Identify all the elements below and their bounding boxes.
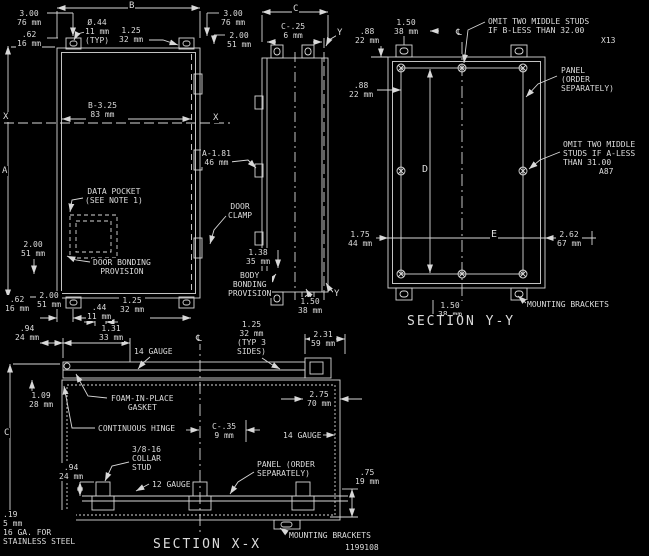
dim-.94-24-top-line: .94 [15,324,39,333]
dim-1.31-33: 1.3133 mm [98,324,124,342]
centerline-symbol-yy: ℄ [455,28,463,38]
title-section-yy-line: SECTION Y-Y [407,315,515,329]
marker-y-bottom: Y [333,289,340,299]
dim-3.00-76-left: 3.0076 mm [16,9,42,27]
dim-2.00-51-bottom-line: 2.00 [37,291,61,300]
dim-1.75-44: 1.7544 mm [347,230,373,248]
note-door-bonding-line: PROVISION [93,267,151,276]
dim-.44-11-bottom-line: 11 mm [87,312,111,321]
dim-.62-16-left-line: 16 mm [17,39,41,48]
dim-3.00-76-right-line: 3.00 [221,9,245,18]
dim-a-1.81-46-line: 46 mm [202,158,231,167]
note-data-pocket-line: DATA POCKET [85,187,143,196]
dim-2.62-67-line: 67 mm [557,239,581,248]
dim-2.00-51-right-line: 2.00 [227,31,251,40]
note-collar-stud: 3/8-16COLLARSTUD [131,445,162,472]
title-section-xx-line: SECTION X-X [153,538,261,552]
marker-x-right: X [212,113,219,123]
centerline-symbol-yy-line: ℄ [456,28,462,38]
dim-2.00-51-bottom: 2.0051 mm [36,291,62,309]
part-number-line: 1199108 [345,543,379,552]
dim-2.75-70-line: 2.75 [307,390,331,399]
note-material-line: .19 [3,510,75,519]
dim-3.00-76-right-line: 76 mm [221,18,245,27]
dim-.88-22-side-line: .88 [349,81,373,90]
note-data-pocket-line: (SEE NOTE 1) [85,196,143,205]
dim-1.38-35-line: 1.38 [246,248,270,257]
note-omit-studs-a: OMIT TWO MIDDLESTUDS IF A-LESSTHAN 31.00 [562,140,636,167]
dim-3.00-76-left-line: 3.00 [17,9,41,18]
note-omit-studs-a-line: STUDS IF A-LESS [563,149,635,158]
dim-2.31-59: 2.3159 mm [310,330,336,348]
note-panel-yy-line: PANEL [561,66,614,75]
note-door-bonding-line: DOOR BONDING [93,258,151,267]
dim-c-.25-6-line: 6 mm [281,31,305,40]
dim-2.75-70: 2.7570 mm [306,390,332,408]
note-14-gauge-top-line: 14 GAUGE [134,347,173,356]
note-omit-studs-b-line: OMIT TWO MIDDLE STUDS [488,17,589,26]
dim-d-label-line: D [422,164,428,175]
dim-e-label-line: E [491,229,497,240]
part-number: 1199108 [344,543,380,552]
dim-.62-16-bottom-line: 16 mm [5,304,29,313]
dim-2.00-51-pocket: 2.0051 mm [20,240,46,258]
marker-y-bottom-line: Y [334,289,339,299]
dim-1.31-33-line: 33 mm [99,333,123,342]
note-14-gauge-right-line: 14 GAUGE [283,431,322,440]
dim-2.00-51-right-line: 51 mm [227,40,251,49]
dim-c-.25-6: C-.256 mm [280,22,306,40]
dim-1.25-32-top-line: 1.25 [119,26,143,35]
note-body-bonding-line: PROVISION [228,289,271,298]
note-collar-stud-line: STUD [132,463,161,472]
note-omit-studs-a-line: OMIT TWO MIDDLE [563,140,635,149]
note-panel-yy: PANEL(ORDERSEPARATELY) [560,66,615,93]
labels-layer: BAC3.0076 mm.6216 mmØ.4411 mm(TYP)1.2532… [0,0,649,556]
dim-b-3.25-83-line: B-3.25 [88,101,117,110]
dim-.75-19-line: .75 [355,468,379,477]
dim-c-.25-6-line: C-.25 [281,22,305,31]
note-door-clamp-line: CLAMP [228,211,252,220]
dim-1.75-44-line: 1.75 [348,230,372,239]
dim-1.25-32-typ-3-sides-line: (TYP 3 [237,338,266,347]
dim-.94-24-stud-line: 24 mm [59,472,83,481]
dim-.94-24-stud: .9424 mm [58,463,84,481]
dim-1.50-38-yy-bottom-line: 1.50 [438,301,462,310]
dim-1.38-35: 1.3835 mm [245,248,271,266]
note-omit-studs-a-line: THAN 31.00 [563,158,635,167]
dim-1.50-38-yy-top: 1.5038 mm [393,18,419,36]
dim-1.75-44-line: 44 mm [348,239,372,248]
note-mounting-brackets-xx-line: MOUNTING BRACKETS [289,531,371,540]
cad-sheet: BAC3.0076 mm.6216 mmØ.4411 mm(TYP)1.2532… [0,0,649,556]
note-mounting-brackets-yy: MOUNTING BRACKETS [526,300,610,309]
note-omit-studs-b-line: IF B-LESS THAN 32.00 [488,26,589,35]
dim-2.31-59-line: 2.31 [311,330,335,339]
dim-d-label: D [421,164,429,175]
dim-.44-11-bottom-line: .44 [87,303,111,312]
dim-e-label: E [490,229,498,240]
dim-1.25-32-top: 1.2532 mm [118,26,144,44]
dim-.75-19: .7519 mm [354,468,380,486]
dim-1.25-32-bottom-line: 1.25 [120,296,144,305]
dim-dia-.44-typ-line: 11 mm [85,27,109,36]
dim-a-label-line: A [2,166,7,176]
note-foam-gasket-line: GASKET [111,403,174,412]
dim-c-.35-9-line: 9 mm [212,431,236,440]
note-mounting-brackets-xx: MOUNTING BRACKETS [288,531,372,540]
dim-a-label: A [1,166,8,176]
dim-1.25-32-bottom: 1.2532 mm [119,296,145,314]
dim-1.25-32-typ-3-sides-line: SIDES) [237,347,266,356]
note-material-line: STAINLESS STEEL [3,537,75,546]
dim-b-label: B [128,1,135,11]
note-omit-studs-a-flag-line: A87 [599,167,613,176]
note-door-clamp: DOORCLAMP [227,202,253,220]
note-14-gauge-right: 14 GAUGE [282,431,323,440]
note-body-bonding-line: BODY [228,271,271,280]
note-continuous-hinge-line: CONTINUOUS HINGE [98,424,175,433]
note-material-line: 5 mm [3,519,75,528]
dim-c-.35-9-line: C-.35 [212,422,236,431]
note-material-line: 16 GA. FOR [3,528,75,537]
dim-dia-.44-typ: Ø.4411 mm(TYP) [84,18,110,45]
dim-2.00-51-right: 2.0051 mm [226,31,252,49]
note-foam-gasket: FOAM-IN-PLACEGASKET [110,394,175,412]
dim-.88-22-top-line: 22 mm [355,36,379,45]
dim-1.09-28-line: 1.09 [29,391,53,400]
dim-.75-19-line: 19 mm [355,477,379,486]
note-panel-yy-line: (ORDER [561,75,614,84]
dim-c-.35-9: C-.359 mm [211,422,237,440]
dim-2.00-51-bottom-line: 51 mm [37,300,61,309]
dim-1.09-28-line: 28 mm [29,400,53,409]
note-omit-studs-b: OMIT TWO MIDDLE STUDSIF B-LESS THAN 32.0… [487,17,590,35]
dim-2.75-70-line: 70 mm [307,399,331,408]
dim-.94-24-stud-line: .94 [59,463,83,472]
note-12-gauge-line: 12 GAUGE [152,480,191,489]
note-panel-xx-line: PANEL (ORDER [257,460,315,469]
dim-.88-22-side-line: 22 mm [349,90,373,99]
dim-.94-24-top: .9424 mm [14,324,40,342]
dim-.94-24-top-line: 24 mm [15,333,39,342]
dim-b-label-line: B [129,1,134,11]
note-continuous-hinge: CONTINUOUS HINGE [97,424,176,433]
title-section-xx: SECTION X-X [152,538,262,552]
dim-3.00-76-right: 3.0076 mm [220,9,246,27]
note-panel-xx-line: SEPARATELY) [257,469,315,478]
marker-x-right-line: X [213,113,218,123]
dim-.62-16-left-line: .62 [17,30,41,39]
dim-1.25-32-typ-3-sides: 1.2532 mm(TYP 3SIDES) [236,320,267,356]
dim-c-top-label-line: C [293,4,298,14]
dim-2.62-67: 2.6267 mm [556,230,582,248]
note-body-bonding: BODYBONDINGPROVISION [227,271,272,298]
dim-2.62-67-line: 2.62 [557,230,581,239]
note-material: .195 mm16 GA. FORSTAINLESS STEEL [2,510,76,546]
dim-1.50-38-yy-top-line: 1.50 [394,18,418,27]
dim-1.25-32-bottom-line: 32 mm [120,305,144,314]
centerline-symbol-xx-line: ℄ [196,334,202,344]
dim-1.25-32-typ-3-sides-line: 32 mm [237,329,266,338]
dim-dia-.44-typ-line: (TYP) [85,36,109,45]
note-12-gauge: 12 GAUGE [151,480,192,489]
dim-.62-16-left: .6216 mm [16,30,42,48]
note-collar-stud-line: COLLAR [132,454,161,463]
note-omit-studs-b-flag-line: X13 [601,36,615,45]
note-mounting-brackets-yy-line: MOUNTING BRACKETS [527,300,609,309]
dim-.44-11-bottom: .4411 mm [86,303,112,321]
dim-.88-22-side: .8822 mm [348,81,374,99]
note-panel-xx: PANEL (ORDERSEPARATELY) [256,460,316,478]
dim-1.38-35-line: 35 mm [246,257,270,266]
dim-2.00-51-pocket-line: 51 mm [21,249,45,258]
dim-1.50-38-side-line: 38 mm [298,306,322,315]
note-door-bonding: DOOR BONDINGPROVISION [92,258,152,276]
centerline-symbol-xx: ℄ [195,334,203,344]
dim-a-1.81-46: A-1.8146 mm [201,149,232,167]
dim-b-3.25-83-line: 83 mm [88,110,117,119]
dim-c-left-label-line: C [4,428,9,438]
dim-dia-.44-typ-line: Ø.44 [85,18,109,27]
dim-c-top-label: C [292,4,299,14]
dim-c-left-label: C [3,428,10,438]
note-omit-studs-b-flag: X13 [600,36,616,45]
dim-2.00-51-pocket-line: 2.00 [21,240,45,249]
marker-x-left-line: X [3,112,8,122]
dim-.62-16-bottom-line: .62 [5,295,29,304]
note-collar-stud-line: 3/8-16 [132,445,161,454]
dim-.88-22-top-line: .88 [355,27,379,36]
dim-a-1.81-46-line: A-1.81 [202,149,231,158]
dim-.62-16-bottom: .6216 mm [4,295,30,313]
note-14-gauge-top: 14 GAUGE [133,347,174,356]
dim-1.09-28: 1.0928 mm [28,391,54,409]
dim-1.25-32-top-line: 32 mm [119,35,143,44]
dim-1.50-38-yy-top-line: 38 mm [394,27,418,36]
note-body-bonding-line: BONDING [228,280,271,289]
marker-y-top-line: Y [337,28,342,38]
note-omit-studs-a-flag: A87 [598,167,614,176]
dim-2.31-59-line: 59 mm [311,339,335,348]
note-data-pocket: DATA POCKET(SEE NOTE 1) [84,187,144,205]
marker-x-left: X [2,112,9,122]
note-door-clamp-line: DOOR [228,202,252,211]
dim-3.00-76-left-line: 76 mm [17,18,41,27]
dim-b-3.25-83: B-3.2583 mm [87,101,118,119]
dim-1.50-38-side-line: 1.50 [298,297,322,306]
dim-1.50-38-side: 1.5038 mm [297,297,323,315]
note-foam-gasket-line: FOAM-IN-PLACE [111,394,174,403]
marker-y-top: Y [336,28,343,38]
note-panel-yy-line: SEPARATELY) [561,84,614,93]
dim-1.31-33-line: 1.31 [99,324,123,333]
dim-1.25-32-typ-3-sides-line: 1.25 [237,320,266,329]
dim-.88-22-top: .8822 mm [354,27,380,45]
title-section-yy: SECTION Y-Y [406,315,516,329]
